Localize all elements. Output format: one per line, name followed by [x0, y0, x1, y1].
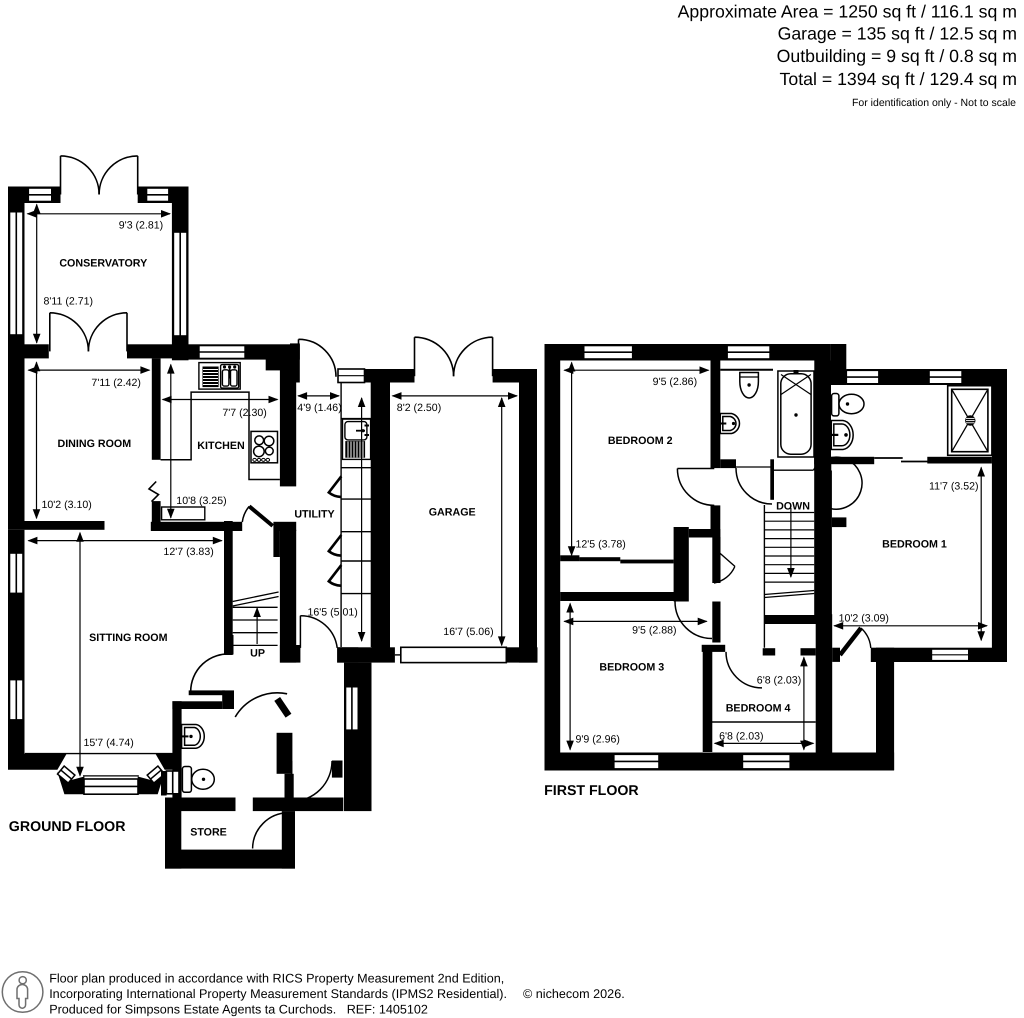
svg-text:9'5 (2.88): 9'5 (2.88): [632, 625, 676, 637]
svg-text:Garage = 135 sq ft / 12.5 sq m: Garage = 135 sq ft / 12.5 sq m: [778, 24, 1017, 44]
svg-text:7'7 (2.30): 7'7 (2.30): [222, 407, 266, 419]
svg-text:10'8 (3.25): 10'8 (3.25): [176, 495, 226, 507]
svg-text:11'7 (3.52): 11'7 (3.52): [929, 480, 979, 492]
svg-text:SITTING ROOM: SITTING ROOM: [89, 632, 167, 644]
svg-text:9'5 (2.86): 9'5 (2.86): [653, 376, 697, 388]
svg-text:16'5 (5.01): 16'5 (5.01): [308, 607, 358, 619]
svg-text:DINING ROOM: DINING ROOM: [57, 438, 131, 450]
svg-text:4'9 (1.46): 4'9 (1.46): [297, 402, 341, 414]
svg-text:Incorporating International Pr: Incorporating International Property Mea…: [49, 987, 507, 1001]
svg-text:Total = 1394 sq ft / 129.4 sq: Total = 1394 sq ft / 129.4 sq m: [780, 69, 1017, 89]
svg-text:8'2 (2.50): 8'2 (2.50): [397, 402, 441, 414]
svg-text:For identification only - Not: For identification only - Not to scale: [852, 97, 1016, 109]
svg-text:GROUND FLOOR: GROUND FLOOR: [9, 819, 126, 835]
svg-text:Produced for Simpsons Estate A: Produced for Simpsons Estate Agents ta C…: [49, 1003, 428, 1017]
svg-text:16'7 (5.06): 16'7 (5.06): [443, 626, 493, 638]
svg-text:BEDROOM 3: BEDROOM 3: [599, 661, 664, 673]
svg-text:BEDROOM 4: BEDROOM 4: [726, 702, 791, 714]
svg-text:Floor plan produced in accorda: Floor plan produced in accordance with R…: [49, 972, 504, 986]
svg-text:CONSERVATORY: CONSERVATORY: [59, 258, 147, 270]
svg-text:12'5 (3.78): 12'5 (3.78): [576, 539, 626, 551]
svg-text:UP: UP: [250, 648, 265, 660]
svg-text:12'7 (3.83): 12'7 (3.83): [163, 546, 213, 558]
svg-text:BEDROOM 1: BEDROOM 1: [882, 538, 947, 550]
svg-text:7'11 (2.42): 7'11 (2.42): [91, 377, 141, 389]
svg-text:9'3 (2.81): 9'3 (2.81): [119, 219, 163, 231]
svg-text:© nichecom 2026.: © nichecom 2026.: [523, 987, 625, 1001]
svg-text:Outbuilding = 9 sq ft / 0.8 sq: Outbuilding = 9 sq ft / 0.8 sq m: [777, 46, 1017, 66]
svg-text:6'8 (2.03): 6'8 (2.03): [757, 675, 801, 687]
svg-text:9'9 (2.96): 9'9 (2.96): [576, 734, 620, 746]
svg-text:STORE: STORE: [190, 826, 227, 838]
svg-text:10'2 (3.09): 10'2 (3.09): [839, 612, 889, 624]
svg-text:FIRST FLOOR: FIRST FLOOR: [544, 783, 639, 799]
svg-text:GARAGE: GARAGE: [429, 507, 476, 519]
svg-text:BEDROOM 2: BEDROOM 2: [608, 435, 673, 447]
svg-text:DOWN: DOWN: [776, 501, 810, 513]
svg-text:15'7 (4.74): 15'7 (4.74): [84, 737, 134, 749]
svg-text:KITCHEN: KITCHEN: [197, 440, 245, 452]
svg-text:Approximate Area = 1250 sq ft: Approximate Area = 1250 sq ft / 116.1 sq…: [678, 2, 1017, 22]
svg-text:10'2 (3.10): 10'2 (3.10): [42, 499, 92, 511]
svg-text:UTILITY: UTILITY: [294, 509, 334, 521]
svg-text:8'11 (2.71): 8'11 (2.71): [44, 296, 94, 308]
svg-text:6'8 (2.03): 6'8 (2.03): [719, 731, 763, 743]
